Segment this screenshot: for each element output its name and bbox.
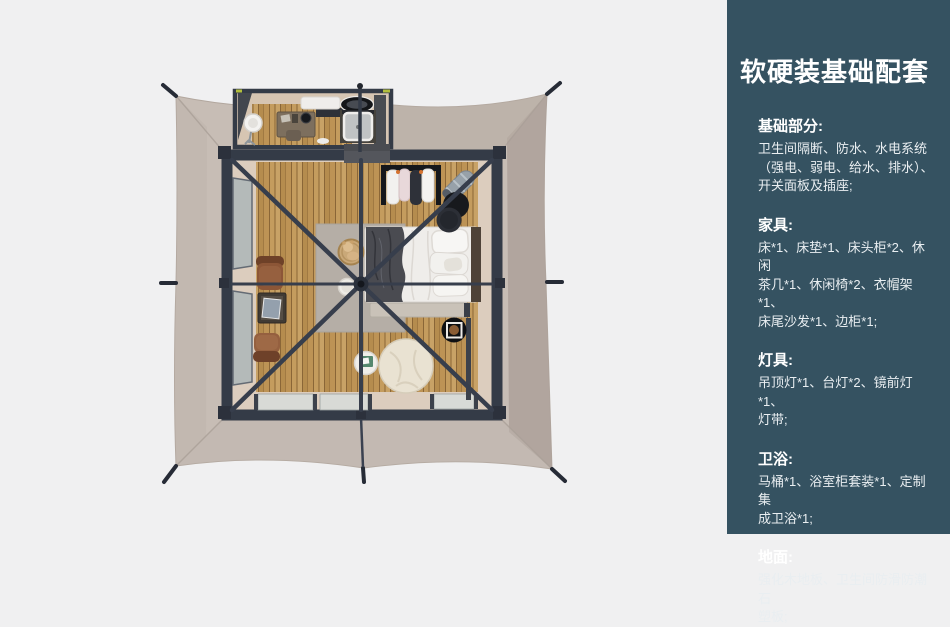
section-line: 塑板; xyxy=(758,608,936,627)
clothes-rack xyxy=(381,165,441,205)
section-line: 灯带; xyxy=(758,411,936,430)
info-panel: 软硬装基础配套 基础部分:卫生间隔断、防水、水电系统（强电、弱电、给水、排水）、… xyxy=(727,0,950,534)
section-line: 茶几*1、休闲椅*2、衣帽架*1、 xyxy=(758,276,936,313)
section-heading: 基础部分: xyxy=(758,115,936,136)
section-line: 卫生间隔断、防水、水电系统 xyxy=(758,140,936,159)
vanity-counter xyxy=(301,97,340,109)
section-line: 强化木地板、卫生间防滑防潮石 xyxy=(758,571,936,608)
doorway-mat xyxy=(344,151,390,163)
accent-marker-right xyxy=(383,90,390,93)
pole-hub-center xyxy=(358,281,365,288)
panel-section: 家具:床*1、床垫*1、床头柜*2、休闲茶几*1、休闲椅*2、衣帽架*1、床尾沙… xyxy=(758,214,936,332)
panel-section: 卫浴:马桶*1、浴室柜套装*1、定制集成卫浴*1; xyxy=(758,448,936,529)
shower-tray xyxy=(340,110,376,143)
bath-mat xyxy=(317,138,329,144)
bathroom xyxy=(235,90,391,148)
panel-title: 软硬装基础配套 xyxy=(740,52,936,89)
armchair-2 xyxy=(253,333,280,362)
panel-section: 地面:强化木地板、卫生间防滑防潮石塑板; xyxy=(758,546,936,627)
panel-sections: 基础部分:卫生间隔断、防水、水电系统（强电、弱电、给水、排水）、开关面板及插座;… xyxy=(758,115,936,627)
section-line: 成卫浴*1; xyxy=(758,510,936,529)
section-heading: 卫浴: xyxy=(758,448,936,469)
section-line: （强电、弱电、给水、排水）、 xyxy=(758,159,936,178)
vanity-desk xyxy=(277,112,315,141)
section-heading: 地面: xyxy=(758,546,936,567)
section-line: 床*1、床垫*1、床头柜*2、休闲 xyxy=(758,239,936,276)
bed-throw xyxy=(366,227,405,302)
section-line: 马桶*1、浴室柜套装*1、定制集 xyxy=(758,473,936,510)
accent-marker-left xyxy=(236,90,242,93)
bedroom xyxy=(218,144,506,419)
section-line: 床尾沙发*1、边柜*1; xyxy=(758,313,936,332)
panel-section: 灯具:吊顶灯*1、台灯*2、镜前灯*1、灯带; xyxy=(758,349,936,430)
headboard xyxy=(471,227,481,302)
canvas-shade-left xyxy=(175,96,208,466)
section-heading: 灯具: xyxy=(758,349,936,370)
section-heading: 家具: xyxy=(758,214,936,235)
magazine-table xyxy=(258,293,286,323)
floorplan-svg xyxy=(0,0,727,534)
coffee-table xyxy=(355,352,378,375)
floorplan-stage xyxy=(0,0,727,534)
panel-section: 基础部分:卫生间隔断、防水、水电系统（强电、弱电、给水、排水）、开关面板及插座; xyxy=(758,115,936,196)
section-line: 吊顶灯*1、台灯*2、镜前灯*1、 xyxy=(758,374,936,411)
section-line: 开关面板及插座; xyxy=(758,177,936,196)
pillows xyxy=(429,229,468,297)
doorway-shadow xyxy=(344,144,390,152)
bench-end-cap xyxy=(464,303,470,317)
bottom-windows xyxy=(254,394,478,410)
tray-table xyxy=(442,318,467,343)
